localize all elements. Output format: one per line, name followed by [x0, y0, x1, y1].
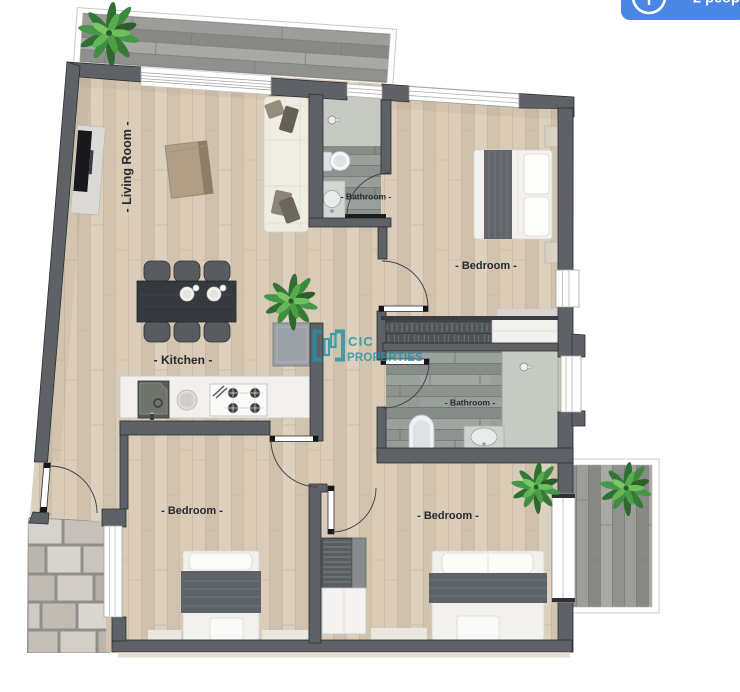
svg-text:PROPERTIES: PROPERTIES: [347, 352, 423, 364]
svg-text:- Bedroom -: - Bedroom -: [417, 510, 479, 522]
svg-text:- Bedroom -: - Bedroom -: [455, 260, 517, 272]
svg-text:- Bedroom -: - Bedroom -: [161, 505, 223, 517]
svg-text:CIC: CIC: [348, 334, 374, 349]
svg-text:- Kitchen -: - Kitchen -: [154, 353, 213, 367]
svg-text:- Bathroom -: - Bathroom -: [341, 192, 392, 202]
svg-text:- Living Room -: - Living Room -: [120, 122, 134, 213]
svg-text:2 peopl: 2 peopl: [693, 0, 740, 7]
svg-text:- Bathroom -: - Bathroom -: [445, 398, 496, 408]
